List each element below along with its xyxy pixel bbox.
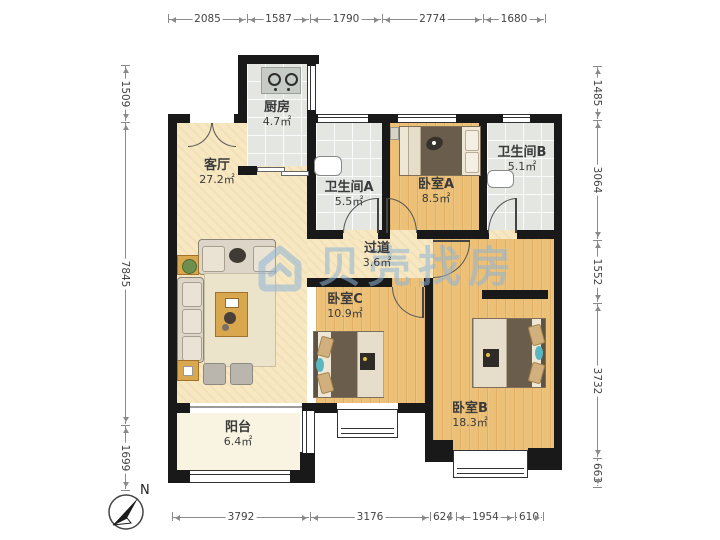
door-gap-patch: [392, 278, 424, 287]
bed-c: [313, 331, 384, 398]
bathroom-a-sink: [314, 156, 342, 176]
dim-right-2: 3064: [590, 120, 604, 240]
room-label-hallway: 过道 3.6㎡: [363, 241, 392, 270]
wall: [424, 278, 433, 287]
side-table: [177, 255, 199, 275]
balcony-side-window: [302, 411, 315, 453]
wall: [554, 114, 562, 458]
coffee-table: [215, 292, 248, 337]
bedroom-c-door-leaf: [422, 287, 424, 318]
burner-icon: [285, 73, 298, 86]
room-label-bed-b: 卧室B 18.3㎡: [452, 401, 488, 430]
bathroom-a-door-leaf: [377, 198, 379, 233]
bed-a: [399, 126, 481, 176]
wall: [234, 114, 247, 123]
bathroom-b-door-leaf: [515, 198, 517, 233]
room-label-living: 客厅 27.2㎡: [199, 158, 235, 187]
nightstand: [390, 127, 399, 140]
wall: [238, 55, 247, 123]
wall: [528, 448, 562, 470]
balcony-threshold: [190, 406, 302, 408]
stove: [261, 67, 301, 94]
wall: [425, 278, 433, 448]
bedroom-a-window: [398, 114, 456, 123]
dim-bottom-1: 3792: [172, 510, 310, 524]
wall: [482, 290, 548, 299]
burner-icon: [268, 73, 281, 86]
dim-top-5: 1680: [483, 12, 545, 26]
dim-bottom-3: 624: [430, 510, 456, 524]
kitchen-sliding-door: [281, 171, 309, 176]
dim-bottom-2: 3176: [310, 510, 430, 524]
wall: [517, 230, 562, 239]
wall: [168, 114, 177, 413]
balcony-window: [190, 470, 290, 483]
bathroom-b-window: [503, 114, 530, 123]
wall: [398, 403, 433, 413]
floor-plan: 贝壳找房 厨房 4.7㎡ 客厅 27.2㎡ 卫生间A 5.5㎡ 卧室A 8.5㎡…: [0, 0, 720, 540]
wall: [307, 278, 392, 287]
bedroom-b-door-leaf: [433, 240, 470, 242]
dim-bottom-4: 1954: [456, 510, 515, 524]
room-label-bed-c: 卧室C 10.9㎡: [327, 292, 363, 321]
dim-top-3: 1790: [310, 12, 382, 26]
compass-north-label: N: [140, 483, 150, 498]
dim-left-2: 7845: [118, 122, 132, 425]
bedroom-a-door-leaf: [386, 198, 388, 233]
bedroom-c-bay-window: [337, 409, 398, 438]
wall: [425, 440, 453, 462]
dim-bottom-5: 610: [515, 510, 543, 524]
wall: [238, 166, 257, 175]
dim-left-1: 1509: [118, 65, 132, 122]
side-table: [177, 360, 199, 381]
wall: [417, 230, 489, 239]
wall: [300, 452, 315, 473]
dim-right-1: 1485: [590, 66, 604, 120]
room-label-bed-a: 卧室A 8.5㎡: [418, 177, 454, 206]
dim-top-1: 2085: [168, 12, 247, 26]
room-label-balcony: 阳台 6.4㎡: [224, 420, 253, 449]
dim-right-4: 3732: [590, 303, 604, 458]
stove-knob: [274, 88, 277, 91]
dim-right-3: 1552: [590, 240, 604, 303]
wall: [168, 470, 192, 483]
dim-right-5: 663: [590, 458, 604, 487]
kitchen-window: [307, 66, 316, 110]
stove-knob: [287, 88, 290, 91]
dim-top-2: 1587: [247, 12, 310, 26]
sofa-top: [198, 239, 276, 275]
stool: [230, 363, 253, 385]
bedroom-b-bay-window: [453, 450, 528, 478]
sofa-left: [177, 277, 204, 363]
bathroom-a-window: [318, 114, 368, 123]
stool: [203, 363, 226, 385]
plant-icon: [182, 259, 197, 274]
wall: [307, 230, 343, 239]
compass: N: [100, 480, 160, 536]
room-label-kitchen: 厨房 4.7㎡: [263, 100, 292, 129]
room-label-bath-a: 卫生间A 5.5㎡: [324, 180, 373, 209]
bed-b: [472, 318, 546, 388]
dim-top-4: 2774: [382, 12, 483, 26]
room-label-bath-b: 卫生间B 5.1㎡: [498, 145, 547, 174]
